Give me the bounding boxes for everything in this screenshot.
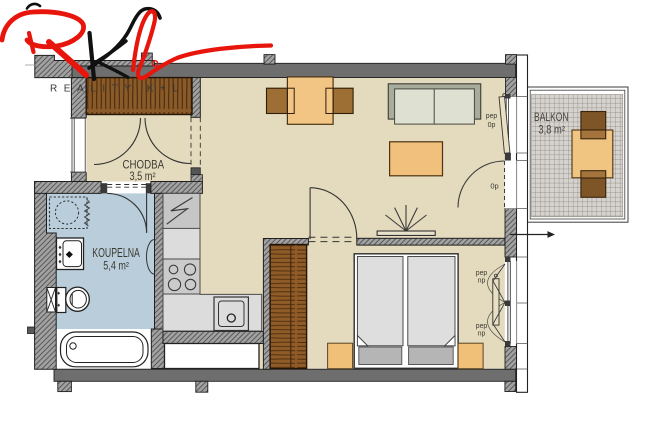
svg-text:REALITY K+L: REALITY K+L [50,84,178,95]
svg-text:KOUPELNA: KOUPELNA [92,246,140,260]
svg-text:5,4 m²: 5,4 m² [103,261,129,273]
svg-text:0p: 0p [490,182,498,191]
svg-text:3,8 m²: 3,8 m² [538,125,565,137]
svg-text:0p: 0p [488,122,496,129]
svg-text:pep: pep [476,323,488,330]
svg-text:BALKON: BALKON [534,110,569,124]
svg-text:np: np [478,278,486,285]
svg-text:pep: pep [486,113,498,120]
svg-text:CHODBA: CHODBA [123,157,165,171]
svg-text:pep: pep [476,270,488,277]
svg-text:np: np [478,331,486,338]
svg-text:3,5 m²: 3,5 m² [130,171,156,183]
